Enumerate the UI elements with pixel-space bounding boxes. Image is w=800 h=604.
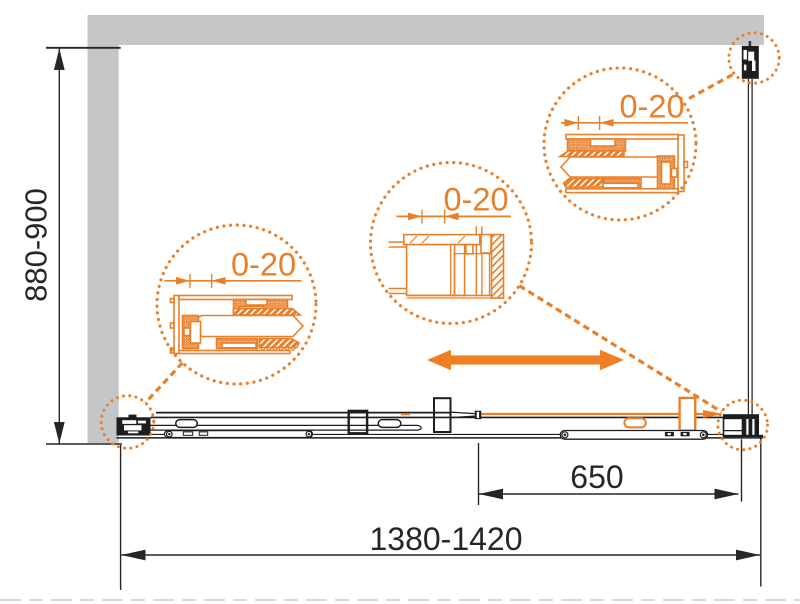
svg-text:0-20: 0-20 (619, 89, 684, 125)
svg-text:0-20: 0-20 (231, 247, 296, 283)
svg-text:0-20: 0-20 (443, 182, 508, 218)
svg-text:1380-1420: 1380-1420 (369, 521, 522, 557)
svg-text:650: 650 (570, 459, 623, 495)
svg-text:880-900: 880-900 (19, 188, 54, 302)
